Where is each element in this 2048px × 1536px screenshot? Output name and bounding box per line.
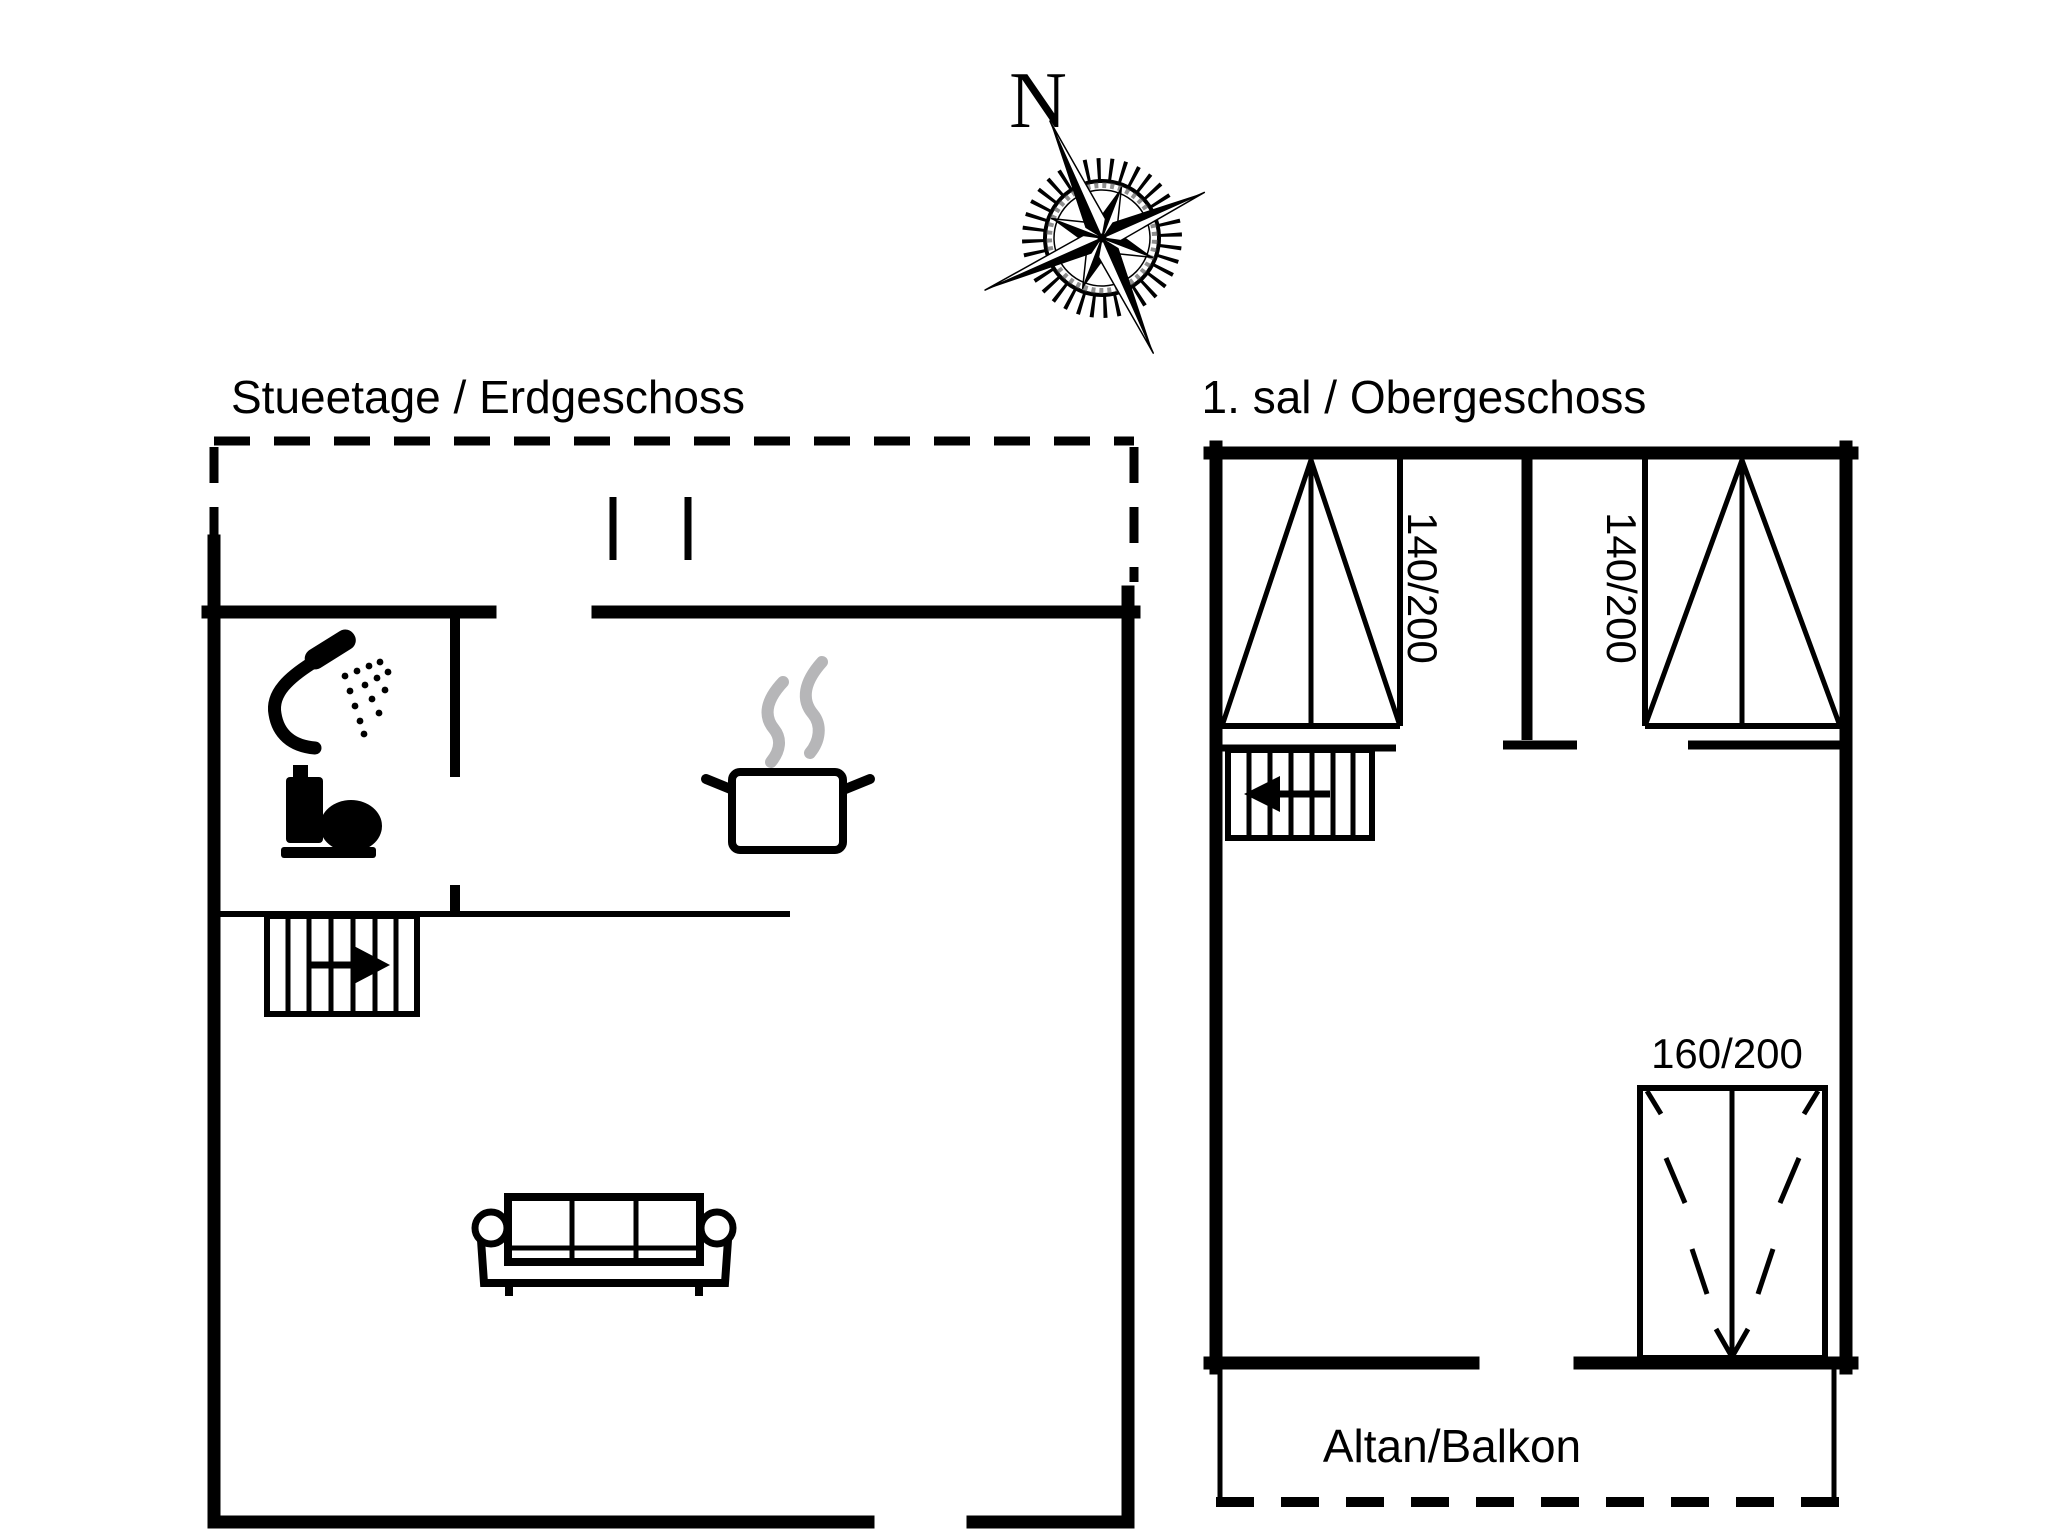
double-bed-icon-left bbox=[1222, 459, 1400, 726]
entrance-door-marks bbox=[613, 497, 688, 560]
ground-floor-dashed-outline bbox=[214, 441, 1134, 582]
compass-north-label: N bbox=[1009, 57, 1067, 145]
sofa-icon bbox=[475, 1197, 733, 1296]
floor-plan-page: N bbox=[0, 0, 2048, 1536]
shower-spray-dots bbox=[342, 659, 392, 738]
ground-floor-outer-walls bbox=[208, 541, 1134, 1522]
steaming-pot-icon bbox=[706, 662, 870, 850]
toilet-icon bbox=[281, 765, 382, 858]
upper-floor-title: 1. sal / Obergeschoss bbox=[1202, 371, 1647, 423]
double-bed-160-icon bbox=[1640, 1088, 1825, 1358]
bed-size-label-large: 160/200 bbox=[1651, 1030, 1803, 1077]
stairs-down-icon bbox=[1228, 750, 1372, 838]
compass-rose-icon: N bbox=[933, 57, 1256, 405]
bed-size-label-left: 140/200 bbox=[1399, 512, 1446, 664]
balcony-label: Altan/Balkon bbox=[1323, 1420, 1581, 1472]
bathroom-walls bbox=[211, 612, 790, 915]
stairs-up-icon bbox=[267, 916, 417, 1014]
upper-floor-plan: 1. sal / Obergeschoss 140/200 bbox=[1202, 371, 1852, 1502]
floor-plan-drawing: N bbox=[0, 0, 2048, 1536]
ground-floor-plan: Stueetage / Erdgeschoss bbox=[208, 371, 1134, 1522]
ground-floor-title: Stueetage / Erdgeschoss bbox=[231, 371, 745, 423]
double-bed-icon-right bbox=[1645, 459, 1840, 726]
upper-floor-partitions bbox=[1222, 459, 1846, 748]
compass-needles bbox=[933, 76, 1256, 406]
steam-wisp bbox=[806, 662, 822, 753]
steam-wisp bbox=[768, 682, 783, 762]
bed-size-label-right: 140/200 bbox=[1598, 512, 1645, 664]
shower-icon bbox=[274, 626, 391, 748]
